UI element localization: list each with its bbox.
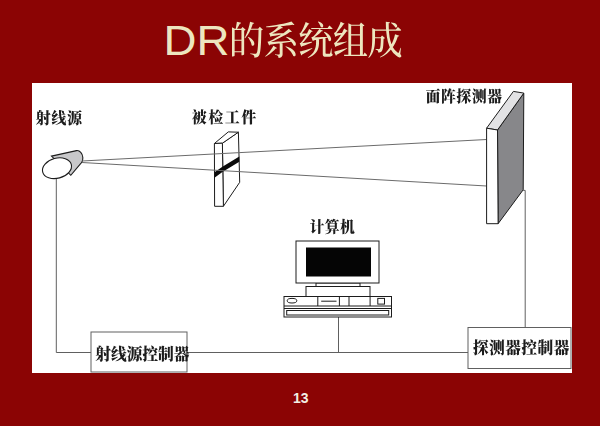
svg-text:DR: DR bbox=[164, 17, 230, 64]
svg-text:13: 13 bbox=[293, 390, 309, 406]
